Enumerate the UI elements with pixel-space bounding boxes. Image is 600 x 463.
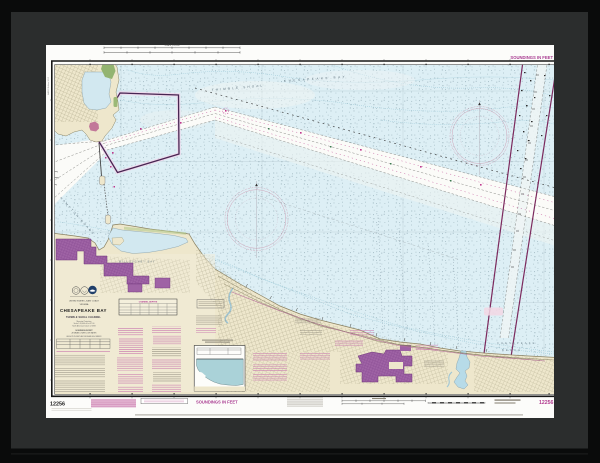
svg-text:CHESAPEAKE BAY: CHESAPEAKE BAY bbox=[60, 308, 107, 313]
svg-text:SOUNDINGS IN FEET: SOUNDINGS IN FEET bbox=[510, 55, 553, 60]
svg-text:NAD83 Edition 2015: NAD83 Edition 2015 bbox=[47, 76, 50, 95]
svg-text:AT MEAN LOWER LOW WATER: AT MEAN LOWER LOW WATER bbox=[72, 332, 97, 335]
svg-text:SOUNDINGS IN FEET: SOUNDINGS IN FEET bbox=[196, 399, 238, 404]
svg-text:CHANNEL DEPTHS: CHANNEL DEPTHS bbox=[139, 300, 158, 303]
svg-text:BEACH: BEACH bbox=[502, 348, 522, 352]
svg-text:North American Datum of 1983: North American Datum of 1983 bbox=[72, 325, 95, 328]
svg-text:SCALE 1:20,000: SCALE 1:20,000 bbox=[165, 44, 181, 47]
svg-text:WILLOUGHBY BAY: WILLOUGHBY BAY bbox=[119, 261, 156, 264]
svg-text:VIRGINIA: VIRGINIA bbox=[80, 303, 89, 306]
svg-text:UNITED STATES - EAST COAST: UNITED STATES - EAST COAST bbox=[69, 299, 100, 302]
svg-text:12256: 12256 bbox=[50, 402, 65, 408]
svg-text:CHESAPEAKE: CHESAPEAKE bbox=[497, 341, 537, 345]
svg-text:12256: 12256 bbox=[539, 400, 554, 406]
svg-text:THIMBLE SHOAL CHANNEL: THIMBLE SHOAL CHANNEL bbox=[66, 316, 101, 319]
